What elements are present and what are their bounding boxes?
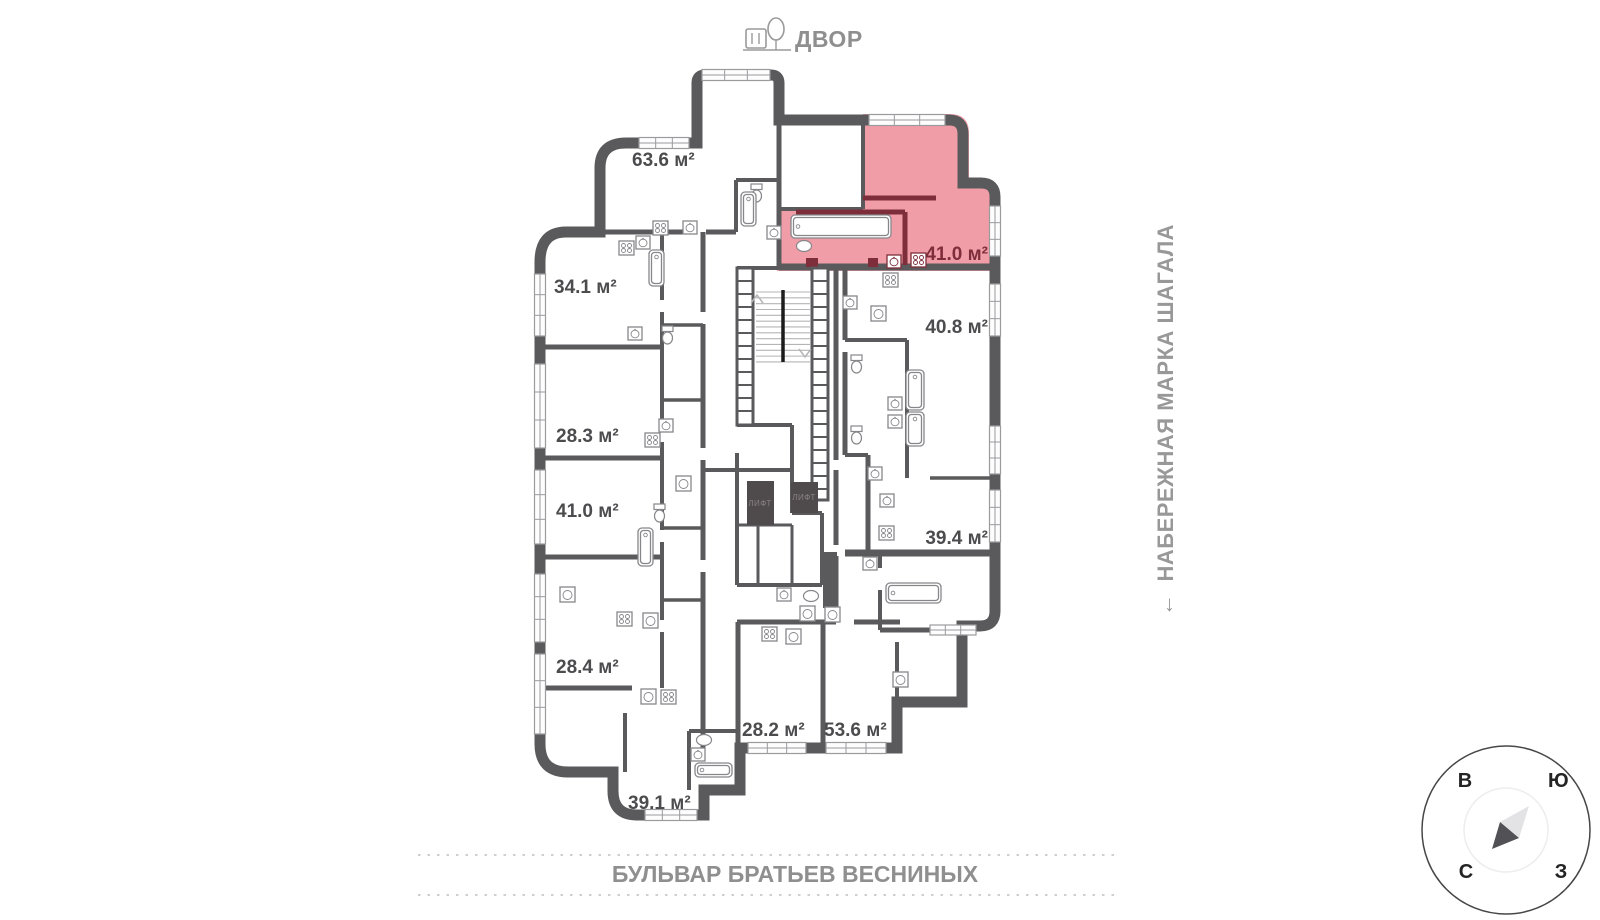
direction-arrow-icon: ← xyxy=(1153,594,1178,617)
street-right-text: НАБЕРЕЖНАЯ МАРКА ШАГАЛА xyxy=(1153,224,1178,582)
apartment-area-label: 28.2 м² xyxy=(742,718,805,744)
elevator-label: ЛИФТ xyxy=(789,493,819,502)
compass-south-label: Ю xyxy=(1548,770,1568,793)
compass-west-label: З xyxy=(1551,861,1571,884)
street-label-bottom: БУЛЬВАР БРАТЬЕВ ВЕСНИНЫХ xyxy=(495,861,1095,888)
street-label-right: ←НАБЕРЕЖНАЯ МАРКА ШАГАЛА xyxy=(1153,276,1179,616)
apartment-area-label: 28.4 м² xyxy=(556,655,619,681)
compass-east-label: В xyxy=(1455,770,1475,793)
apartment-area-label: 39.4 м² xyxy=(850,526,988,552)
floorplan-page: 63.6 м² 34.1 м² 28.3 м² 41.0 м² 28.4 м² … xyxy=(0,0,1600,920)
apartment-area-label: 34.1 м² xyxy=(554,275,617,301)
floor-plan-svg xyxy=(0,0,1600,920)
apartment-area-label: 40.8 м² xyxy=(850,315,988,341)
elevator-label: ЛИФТ xyxy=(744,499,776,508)
compass-north-label: С xyxy=(1456,861,1476,884)
courtyard-label: ДВОР xyxy=(795,26,863,53)
apartment-area-label: 41.0 м² xyxy=(556,499,619,525)
apartment-area-label: 53.6 м² xyxy=(824,718,887,744)
apartment-area-label: 39.1 м² xyxy=(628,791,691,817)
selected-apartment-area-label[interactable]: 41.0 м² xyxy=(850,242,988,268)
apartment-area-label: 63.6 м² xyxy=(632,148,695,174)
apartment-area-label: 28.3 м² xyxy=(556,424,619,450)
